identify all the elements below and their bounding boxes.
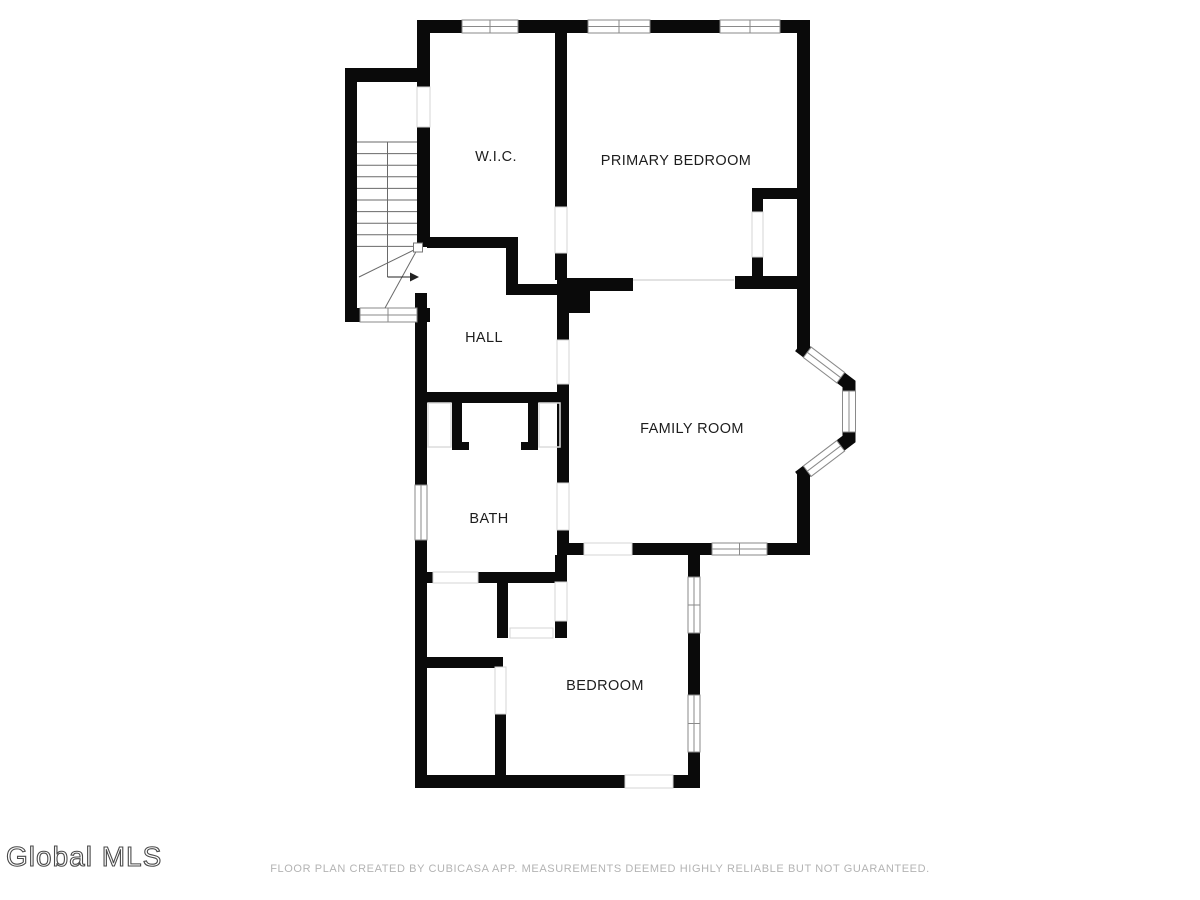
floorplan-canvas: W.I.C. PRIMARY BEDROOM HALL FAMILY ROOM …	[0, 0, 1200, 900]
window	[588, 20, 650, 33]
window	[688, 577, 700, 633]
structural-column	[557, 278, 590, 313]
wall	[497, 578, 508, 638]
door-opening	[495, 667, 506, 714]
room-label-hall: HALL	[465, 330, 503, 346]
fixture	[428, 403, 451, 447]
room-label-primary-bedroom: PRIMARY BEDROOM	[601, 153, 752, 169]
stair-winder-line	[359, 248, 418, 277]
window	[415, 485, 427, 540]
window	[688, 695, 700, 752]
room-label-bedroom: BEDROOM	[566, 678, 644, 694]
wall	[415, 392, 567, 403]
bay-window-pane	[843, 391, 856, 432]
window	[462, 20, 518, 33]
wall	[521, 442, 538, 450]
bath-fixtures	[428, 403, 560, 447]
wall	[345, 68, 430, 82]
walls	[345, 20, 810, 788]
wall	[345, 68, 357, 322]
fixture	[539, 403, 560, 447]
room-label-family-room: FAMILY ROOM	[640, 421, 744, 437]
windows	[360, 20, 856, 752]
door-opening	[555, 582, 567, 621]
wall	[797, 20, 810, 352]
door-opening	[557, 483, 569, 530]
room-label-wic: W.I.C.	[475, 149, 517, 165]
door-opening	[510, 628, 553, 638]
door-opening	[584, 543, 632, 555]
wall	[420, 657, 503, 668]
window	[712, 543, 767, 555]
wall	[797, 471, 810, 555]
wall	[735, 276, 797, 289]
staircase	[357, 142, 423, 308]
wall	[427, 237, 513, 248]
door-opening	[417, 87, 430, 127]
wall	[506, 284, 558, 295]
door-opening	[752, 212, 763, 257]
door-opening	[555, 207, 567, 253]
footer-disclaimer: FLOOR PLAN CREATED BY CUBICASA APP. MEAS…	[270, 863, 930, 875]
door-opening	[557, 340, 569, 384]
stair-pivot	[414, 243, 423, 252]
window	[360, 308, 417, 322]
floor-plan-svg	[0, 0, 1200, 900]
window	[720, 20, 780, 33]
wall	[417, 20, 430, 247]
wall	[452, 442, 469, 450]
wall	[588, 278, 633, 291]
bay-window-pane	[803, 441, 844, 477]
room-label-bath: BATH	[469, 511, 508, 527]
stair-direction-arrow-icon	[410, 273, 419, 282]
door-opening	[433, 572, 478, 583]
global-mls-watermark: Global MLS	[6, 841, 162, 873]
door-opening	[625, 775, 673, 788]
bay-window-pane	[803, 347, 844, 383]
